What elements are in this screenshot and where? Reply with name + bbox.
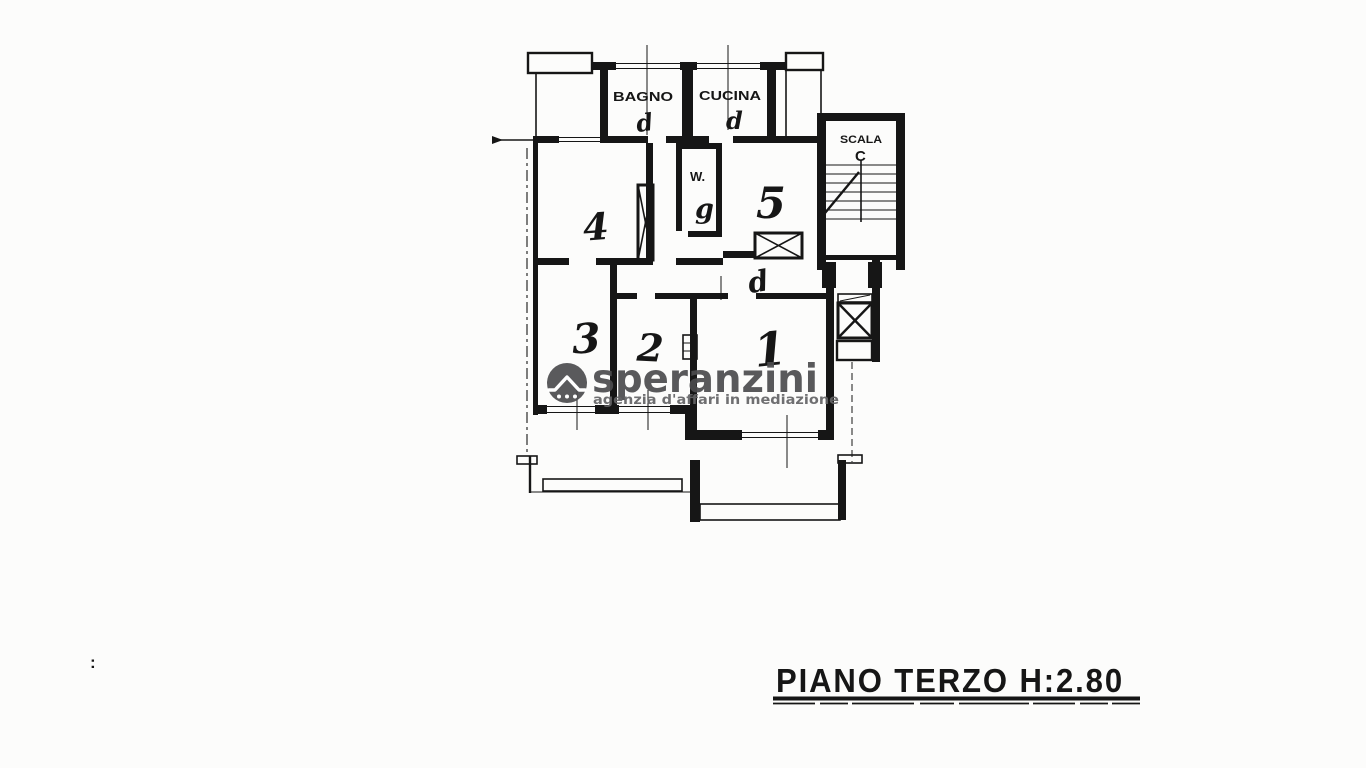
cucina-door-letter: d: [726, 106, 743, 135]
room-number-4: 4: [581, 204, 610, 250]
room-label-cucina: CUCINA: [699, 88, 762, 103]
logo-dot: [557, 395, 561, 399]
watermark: speranzini agenzia d'affari in mediazion…: [547, 357, 839, 408]
caption-text: PIANO TERZO H:2.80: [776, 662, 1124, 699]
room-label-wc: W.: [690, 169, 705, 184]
elevator-shaft: [837, 294, 872, 360]
logo-dot: [565, 395, 569, 399]
left-arrow-tick: [492, 136, 503, 144]
wc-note-letter: g: [695, 194, 714, 225]
stairs-scala-c: [825, 160, 896, 222]
logo-dot: [573, 395, 577, 399]
stairs-label-c: C: [855, 148, 866, 165]
walls: [533, 62, 905, 522]
scanned-floorplan-page: BAGNO CUCINA SCALA C W. g 1 2 3 4 5 d d …: [0, 0, 1366, 768]
watermark-tagline-text: agenzia d'affari in mediazione: [593, 393, 839, 408]
balconies: [517, 455, 862, 520]
floorplan-svg: BAGNO CUCINA SCALA C W. g 1 2 3 4 5 d d …: [0, 0, 1366, 768]
stairs-label-scala: SCALA: [840, 134, 882, 146]
room-number-5: 5: [756, 179, 786, 229]
stray-ink-mark: :: [90, 653, 96, 672]
room-label-bagno: BAGNO: [613, 89, 673, 104]
caption-block: PIANO TERZO H:2.80: [773, 662, 1140, 704]
bagno-door-letter: d: [634, 107, 655, 138]
hall-door-letter: d: [745, 263, 771, 300]
